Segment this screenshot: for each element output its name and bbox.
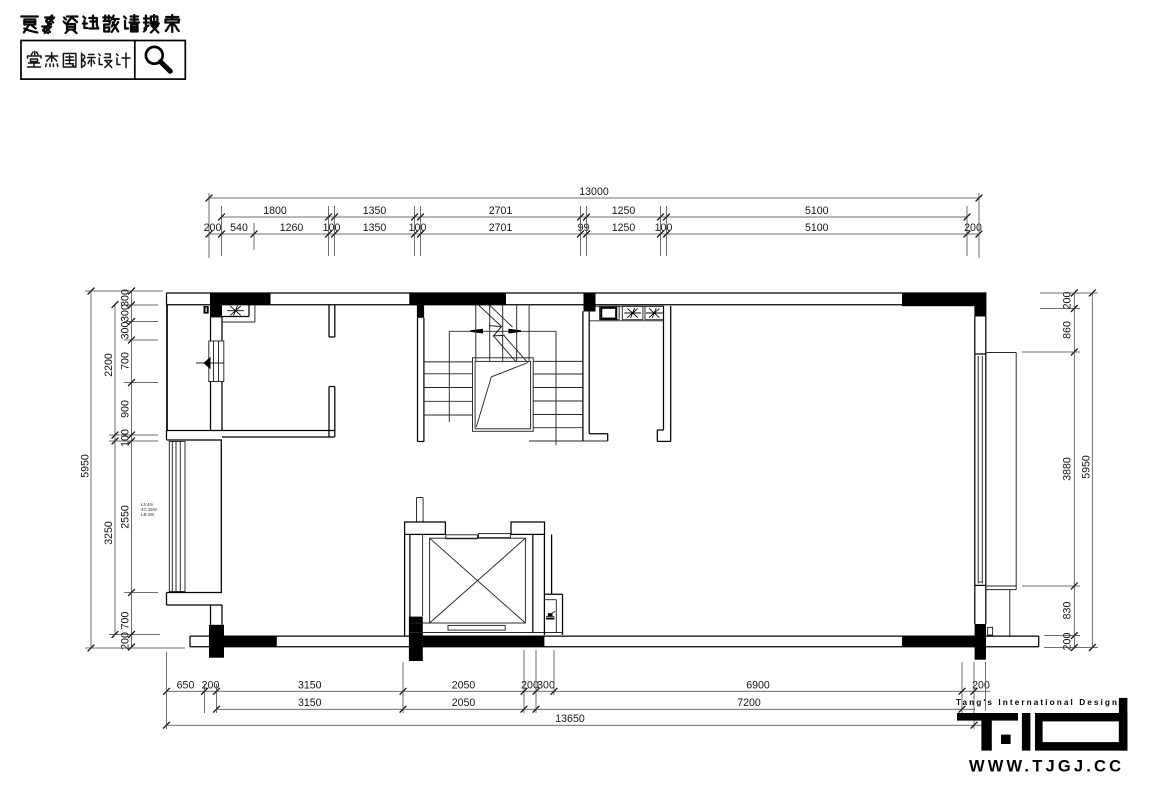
svg-text:100: 100 bbox=[409, 222, 427, 234]
svg-text:100: 100 bbox=[120, 429, 132, 447]
svg-text:5950: 5950 bbox=[1081, 455, 1093, 479]
svg-text:650: 650 bbox=[177, 679, 195, 691]
svg-text:300: 300 bbox=[120, 304, 132, 322]
svg-text:13000: 13000 bbox=[579, 186, 609, 198]
svg-text:5950: 5950 bbox=[80, 454, 92, 478]
svg-text:830: 830 bbox=[1062, 602, 1074, 620]
svg-text:540: 540 bbox=[230, 222, 248, 234]
svg-text:13650: 13650 bbox=[555, 713, 585, 725]
svg-text:1800: 1800 bbox=[263, 205, 287, 217]
svg-text:2701: 2701 bbox=[489, 205, 513, 217]
svg-text:6900: 6900 bbox=[746, 679, 770, 691]
svg-text:2050: 2050 bbox=[452, 679, 476, 691]
svg-text:3150: 3150 bbox=[298, 679, 322, 691]
svg-text:LB:4W: LB:4W bbox=[141, 512, 155, 517]
svg-text:100: 100 bbox=[323, 222, 341, 234]
svg-text:5100: 5100 bbox=[805, 222, 829, 234]
svg-text:WWW.TJGJ.CC: WWW.TJGJ.CC bbox=[969, 758, 1124, 776]
svg-text:3150: 3150 bbox=[298, 697, 322, 709]
svg-text:2200: 2200 bbox=[103, 353, 115, 377]
svg-text:Tang's International Design: Tang's International Design bbox=[956, 698, 1119, 707]
svg-text:700: 700 bbox=[120, 352, 132, 370]
svg-text:200: 200 bbox=[204, 222, 222, 234]
svg-text:1250: 1250 bbox=[612, 205, 636, 217]
svg-text:1350: 1350 bbox=[363, 222, 387, 234]
svg-text:900: 900 bbox=[120, 400, 132, 418]
svg-text:5100: 5100 bbox=[805, 205, 829, 217]
svg-text:2550: 2550 bbox=[120, 505, 132, 529]
svg-text:300: 300 bbox=[120, 322, 132, 340]
svg-text:300: 300 bbox=[537, 679, 555, 691]
svg-text:100: 100 bbox=[655, 222, 673, 234]
svg-text:1250: 1250 bbox=[612, 222, 636, 234]
svg-text:99: 99 bbox=[578, 222, 590, 234]
svg-text:2701: 2701 bbox=[489, 222, 513, 234]
svg-text:3250: 3250 bbox=[103, 521, 115, 545]
svg-text:7200: 7200 bbox=[737, 697, 761, 709]
svg-text:700: 700 bbox=[120, 612, 132, 630]
svg-text:200: 200 bbox=[1062, 292, 1074, 310]
svg-text:1260: 1260 bbox=[280, 222, 304, 234]
svg-text:2050: 2050 bbox=[452, 697, 476, 709]
svg-text:3880: 3880 bbox=[1062, 457, 1074, 481]
svg-text:860: 860 bbox=[1062, 321, 1074, 339]
svg-text:200: 200 bbox=[972, 679, 990, 691]
svg-text:1350: 1350 bbox=[363, 205, 387, 217]
